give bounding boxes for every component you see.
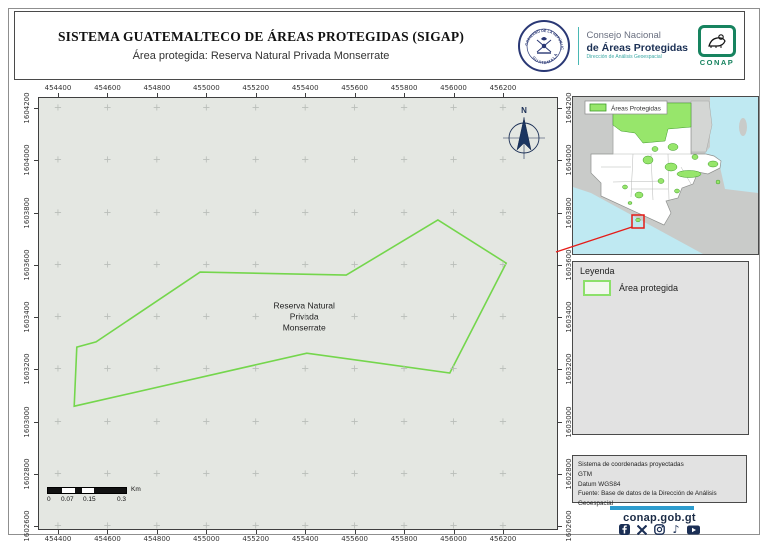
metadata-panel: Sistema de coordenadas proyectadas GTM D… xyxy=(572,455,747,503)
website-link[interactable]: conap.gob.gt xyxy=(572,512,747,524)
scale-bar-segment xyxy=(75,488,82,493)
metadata-line: Sistema de coordenadas proyectadas xyxy=(578,460,741,470)
axis-tick xyxy=(558,317,562,318)
axis-tick xyxy=(558,474,562,475)
axis-tick xyxy=(34,474,38,475)
axis-tick xyxy=(404,93,405,97)
axis-tick xyxy=(404,530,405,534)
x-axis-label: 456000 xyxy=(440,535,467,543)
axis-tick xyxy=(558,369,562,370)
scale-bar-number: 0.07 xyxy=(61,496,74,503)
axis-tick xyxy=(558,422,562,423)
y-axis-label: 1604000 xyxy=(23,145,31,176)
protected-area-swatch xyxy=(583,280,611,296)
axis-tick xyxy=(34,526,38,527)
axis-tick xyxy=(107,93,108,97)
scale-bar-segment xyxy=(94,488,126,493)
area-label: Reserva Natural Privada Monserrate xyxy=(273,300,334,333)
x-axis-label: 455600 xyxy=(341,84,368,92)
axis-tick xyxy=(256,93,257,97)
x-axis-label: 454400 xyxy=(45,84,72,92)
page-subtitle: Área protegida: Reserva Natural Privada … xyxy=(133,50,390,62)
x-axis-label: 455000 xyxy=(193,535,220,543)
axis-tick xyxy=(157,93,158,97)
axis-tick xyxy=(157,530,158,534)
logo-divider xyxy=(578,27,579,65)
scale-bar-graphic xyxy=(47,487,127,494)
org-name-line1: Consejo Nacional xyxy=(586,31,688,42)
x-axis-label: 454800 xyxy=(144,84,171,92)
y-axis-label: 1603400 xyxy=(23,301,31,332)
scale-bar-number: 0.3 xyxy=(117,496,126,503)
metadata-line: Datum WGS84 xyxy=(578,480,741,490)
scale-bar-number: 0 xyxy=(47,496,51,503)
x-axis-label: 454800 xyxy=(144,535,171,543)
x-axis-label: 454600 xyxy=(94,535,121,543)
axis-tick xyxy=(454,530,455,534)
axis-tick xyxy=(503,530,504,534)
axis-tick xyxy=(558,526,562,527)
logo-area: GOBIERNO DE LA REPÚBLICA GUATEMALA Conse… xyxy=(517,12,736,79)
area-label-line1: Reserva Natural xyxy=(273,300,334,311)
x-axis-label: 455200 xyxy=(242,84,269,92)
x-axis-label: 455400 xyxy=(292,84,319,92)
axis-tick xyxy=(34,422,38,423)
scale-bar: Km 00.070.150.3 xyxy=(47,487,167,507)
x-axis-label: 455800 xyxy=(391,84,418,92)
x-axis-label: 455000 xyxy=(193,84,220,92)
y-axis-label: 1603000 xyxy=(23,406,31,437)
axis-tick xyxy=(305,530,306,534)
legend-item-label: Área protegida xyxy=(619,283,678,293)
conap-logo-label: CONAP xyxy=(700,58,735,67)
x-axis-label: 456000 xyxy=(440,84,467,92)
axis-tick xyxy=(256,530,257,534)
page-title: SISTEMA GUATEMALTECO DE ÁREAS PROTEGIDAS… xyxy=(58,29,464,45)
y-axis-label: 1602600 xyxy=(23,510,31,541)
scale-bar-number: 0.15 xyxy=(83,496,96,503)
axis-tick xyxy=(206,93,207,97)
axis-tick xyxy=(58,530,59,534)
legend-item: Área protegida xyxy=(583,280,748,296)
axis-tick xyxy=(34,213,38,214)
conap-logo-icon xyxy=(698,25,736,57)
legend-title: Leyenda xyxy=(580,266,748,276)
x-axis-label: 455400 xyxy=(292,535,319,543)
area-label-line2: Privada xyxy=(273,311,334,322)
axis-tick xyxy=(305,93,306,97)
axis-tick xyxy=(34,160,38,161)
inset-legend-swatch xyxy=(590,104,606,111)
conap-logo: CONAP xyxy=(698,25,736,67)
y-axis-label: 1603200 xyxy=(23,354,31,385)
axis-tick xyxy=(206,530,207,534)
axis-tick xyxy=(558,213,562,214)
x-axis-label: 454400 xyxy=(45,535,72,543)
axis-tick xyxy=(454,93,455,97)
axis-tick xyxy=(34,265,38,266)
axis-tick xyxy=(34,369,38,370)
org-name-line2: de Áreas Protegidas xyxy=(586,42,688,54)
tiktok-icon[interactable]: ♪ xyxy=(672,525,679,535)
inset-legend-label: Áreas Protegidas xyxy=(611,104,662,113)
north-label: N xyxy=(521,106,527,115)
youtube-icon[interactable] xyxy=(687,525,700,535)
social-icons-row: ♪ xyxy=(572,524,747,535)
axis-tick xyxy=(107,530,108,534)
government-seal-icon: GOBIERNO DE LA REPÚBLICA GUATEMALA xyxy=(517,19,571,73)
axis-tick xyxy=(558,160,562,161)
scale-bar-segment xyxy=(82,488,94,493)
y-axis-label: 1604200 xyxy=(23,92,31,123)
scale-bar-segment xyxy=(62,488,74,493)
y-axis-label: 1603800 xyxy=(23,197,31,228)
north-arrow-icon: N xyxy=(501,103,547,163)
y-axis-label: 1602800 xyxy=(23,458,31,489)
x-axis-label: 455800 xyxy=(391,535,418,543)
x-axis-label: 455600 xyxy=(341,535,368,543)
x-axis-label: 456200 xyxy=(490,535,517,543)
guatemala-overview-map: Áreas Protegidas xyxy=(573,97,758,254)
area-label-line3: Monserrate xyxy=(273,322,334,333)
axis-tick xyxy=(34,317,38,318)
title-box: SISTEMA GUATEMALTECO DE ÁREAS PROTEGIDAS… xyxy=(14,11,745,80)
org-name-line3: Dirección de Análisis Geoespacial xyxy=(586,55,688,61)
inset-legend: Áreas Protegidas xyxy=(585,101,667,114)
scale-bar-unit: Km xyxy=(131,486,141,493)
x-icon[interactable] xyxy=(637,525,647,535)
axis-tick xyxy=(355,93,356,97)
x-axis-label: 455200 xyxy=(242,535,269,543)
facebook-icon[interactable] xyxy=(619,524,630,535)
title-wrap: SISTEMA GUATEMALTECO DE ÁREAS PROTEGIDAS… xyxy=(15,12,507,79)
metadata-line: GTM xyxy=(578,470,741,480)
overview-map-panel[interactable]: Áreas Protegidas xyxy=(572,96,759,255)
conap-wordmark: Consejo Nacional de Áreas Protegidas Dir… xyxy=(586,31,688,61)
axis-tick xyxy=(558,108,562,109)
footer-accent-bar xyxy=(610,506,694,510)
axis-tick xyxy=(34,108,38,109)
legend-panel: Leyenda Área protegida xyxy=(572,261,749,435)
scale-bar-segment xyxy=(48,488,62,493)
axis-tick xyxy=(355,530,356,534)
axis-tick xyxy=(503,93,504,97)
map-sheet: SISTEMA GUATEMALTECO DE ÁREAS PROTEGIDAS… xyxy=(0,0,768,543)
axis-tick xyxy=(58,93,59,97)
axis-tick xyxy=(558,265,562,266)
x-axis-label: 454600 xyxy=(94,84,121,92)
y-axis-label: 1603600 xyxy=(23,249,31,280)
instagram-icon[interactable] xyxy=(654,524,665,535)
main-map[interactable]: Reserva Natural Privada Monserrate N Km … xyxy=(38,97,558,530)
x-axis-label: 456200 xyxy=(490,84,517,92)
